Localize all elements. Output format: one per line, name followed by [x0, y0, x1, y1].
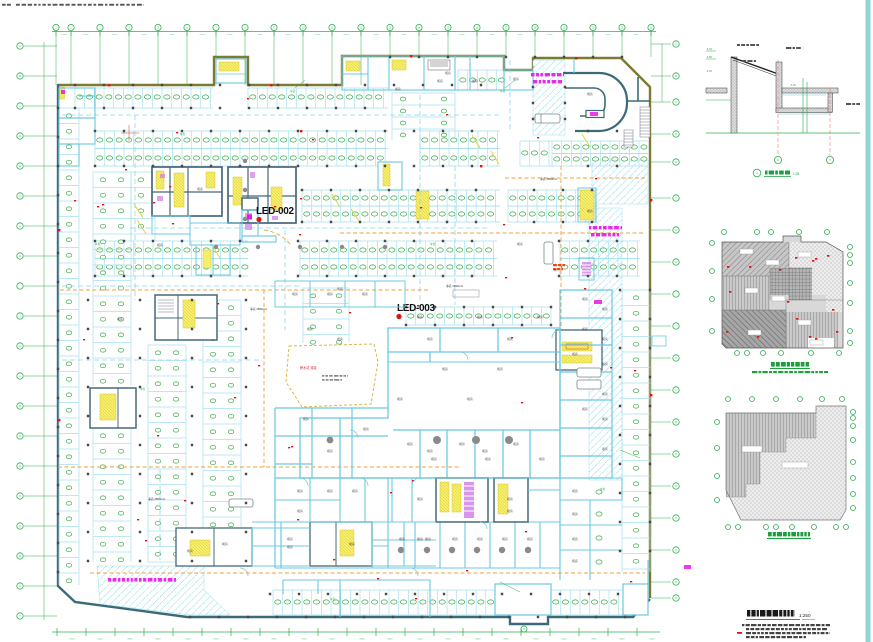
svg-text:机房: 机房	[587, 92, 593, 96]
svg-text:机房: 机房	[602, 307, 608, 311]
svg-text:P: P	[675, 516, 677, 520]
svg-text:机房: 机房	[582, 327, 588, 331]
svg-text:机房: 机房	[287, 537, 293, 541]
svg-text:机房: 机房	[399, 537, 405, 541]
svg-text:车位: 车位	[95, 242, 101, 246]
svg-text:机房: 机房	[327, 449, 333, 453]
svg-text:8100: 8100	[402, 34, 408, 36]
svg-text:8100: 8100	[490, 34, 496, 36]
svg-text:LED-002: LED-002	[256, 206, 294, 217]
svg-text:机房: 机房	[527, 537, 533, 541]
svg-text:M: M	[675, 420, 677, 424]
svg-text:机房: 机房	[482, 449, 488, 453]
svg-text:机房: 机房	[337, 287, 343, 291]
svg-text:车位: 车位	[180, 132, 186, 136]
svg-text:机房: 机房	[602, 337, 608, 341]
svg-text:8100: 8100	[244, 639, 250, 641]
svg-text:车位: 车位	[140, 387, 146, 391]
svg-text:机房: 机房	[297, 489, 303, 493]
svg-text:机房: 机房	[507, 337, 513, 341]
svg-text:机房: 机房	[572, 489, 578, 493]
svg-text:机房: 机房	[587, 209, 593, 213]
svg-text:8100: 8100	[272, 639, 278, 641]
svg-text:LED-003: LED-003	[397, 303, 435, 314]
svg-text:E: E	[675, 160, 677, 164]
svg-text:机房: 机房	[459, 442, 465, 446]
svg-text:G: G	[19, 224, 21, 228]
svg-text:机房: 机房	[445, 71, 451, 75]
svg-text:8100: 8100	[592, 639, 598, 641]
svg-text:净高 2850mm: 净高 2850mm	[148, 497, 166, 501]
svg-text:净高 2850mm: 净高 2850mm	[250, 307, 268, 311]
svg-text:机房: 机房	[431, 457, 437, 461]
svg-text:8100: 8100	[650, 639, 656, 641]
svg-text:机房: 机房	[572, 537, 578, 541]
svg-text:H: H	[19, 254, 21, 258]
svg-text:机房: 机房	[602, 447, 608, 451]
svg-text:机房: 机房	[363, 427, 369, 431]
svg-text:机房: 机房	[222, 542, 228, 546]
svg-text:机房: 机房	[572, 512, 578, 516]
svg-text:8100: 8100	[186, 639, 192, 641]
svg-text:8100: 8100	[374, 34, 380, 36]
svg-text:8100: 8100	[84, 34, 90, 36]
svg-text:车位: 车位	[430, 242, 436, 246]
svg-text:机房: 机房	[602, 362, 608, 366]
svg-text:机房: 机房	[572, 559, 578, 563]
svg-text:8100: 8100	[62, 34, 68, 36]
svg-text:机房: 机房	[507, 509, 513, 513]
svg-text:1: 1	[756, 171, 758, 175]
svg-text:机房: 机房	[187, 549, 193, 553]
svg-text:机房: 机房	[362, 292, 368, 296]
svg-text:8100: 8100	[302, 639, 308, 641]
svg-text:1:25: 1:25	[793, 172, 799, 176]
svg-text:机房: 机房	[572, 352, 578, 356]
svg-text:机房: 机房	[292, 292, 298, 296]
svg-text:机房: 机房	[417, 497, 423, 501]
svg-text:机房: 机房	[427, 337, 433, 341]
svg-text:8100: 8100	[112, 34, 118, 36]
svg-text:N: N	[675, 452, 677, 456]
svg-text:机房: 机房	[395, 87, 401, 91]
svg-text:机房: 机房	[582, 407, 588, 411]
svg-text:机房: 机房	[517, 242, 523, 246]
svg-text:机房: 机房	[477, 537, 483, 541]
svg-text:机房: 机房	[507, 497, 513, 501]
svg-text:机房: 机房	[497, 367, 503, 371]
svg-text:机房: 机房	[303, 417, 309, 421]
svg-text:R: R	[675, 580, 677, 584]
svg-text:车道: 车道	[330, 597, 336, 601]
svg-text:O: O	[675, 484, 677, 488]
svg-text:机房: 机房	[287, 545, 293, 549]
svg-text:机房: 机房	[437, 79, 443, 83]
svg-text:8100: 8100	[388, 639, 394, 641]
svg-text:机房: 机房	[307, 327, 313, 331]
svg-text:E: E	[19, 164, 21, 168]
svg-text:D: D	[19, 134, 21, 138]
svg-text:-5.85: -5.85	[706, 55, 712, 59]
svg-text:机房: 机房	[427, 449, 433, 453]
svg-text:C: C	[19, 104, 21, 108]
svg-text:8100: 8100	[128, 639, 134, 641]
svg-text:8100: 8100	[330, 639, 336, 641]
svg-text:B: B	[19, 74, 21, 78]
svg-text:8100: 8100	[156, 639, 162, 641]
svg-text:车道: 车道	[290, 89, 296, 93]
svg-text:机房: 机房	[485, 457, 491, 461]
svg-text:8100: 8100	[460, 34, 466, 36]
svg-text:M: M	[19, 404, 21, 408]
svg-text:8100: 8100	[534, 639, 540, 641]
svg-text:D: D	[675, 132, 677, 136]
svg-text:H: H	[675, 260, 677, 264]
svg-text:R: R	[19, 554, 21, 558]
svg-text:机房: 机房	[397, 397, 403, 401]
svg-text:8100: 8100	[214, 639, 220, 641]
svg-text:8100: 8100	[418, 639, 424, 641]
svg-text:机房: 机房	[157, 243, 163, 247]
svg-text:8100: 8100	[316, 34, 322, 36]
svg-text:机房: 机房	[539, 457, 545, 461]
svg-text:机房: 机房	[477, 315, 483, 319]
svg-text:8100: 8100	[258, 34, 264, 36]
svg-text:A: A	[675, 42, 677, 46]
svg-text:机房: 机房	[513, 77, 519, 81]
svg-text:机房: 机房	[327, 292, 333, 296]
svg-text:G: G	[675, 228, 677, 232]
svg-text:机房: 机房	[407, 442, 413, 446]
svg-text:机房: 机房	[602, 417, 608, 421]
svg-text:8100: 8100	[286, 34, 292, 36]
svg-text:Q: Q	[19, 524, 21, 528]
svg-text:S: S	[19, 584, 21, 588]
svg-text:8100: 8100	[620, 639, 626, 641]
svg-text:8100: 8100	[606, 34, 612, 36]
svg-text:机房: 机房	[425, 537, 431, 541]
svg-text:8100: 8100	[576, 34, 582, 36]
svg-text:净高 2850mm: 净高 2850mm	[446, 284, 464, 288]
svg-text:-5.95: -5.95	[790, 83, 796, 87]
svg-text:S: S	[675, 596, 677, 600]
svg-text:8100: 8100	[432, 34, 438, 36]
svg-text:8100: 8100	[504, 639, 510, 641]
svg-text:机房: 机房	[442, 367, 448, 371]
svg-text:1:250: 1:250	[799, 613, 811, 618]
svg-text:车位: 车位	[600, 487, 606, 491]
svg-text:机房: 机房	[582, 297, 588, 301]
svg-text:机房: 机房	[602, 392, 608, 396]
svg-text:机房: 机房	[537, 315, 543, 319]
svg-text:机房: 机房	[117, 317, 123, 321]
svg-text:车道: 车道	[500, 89, 506, 93]
svg-text:-6.45: -6.45	[706, 69, 712, 73]
svg-text:C: C	[675, 100, 677, 104]
svg-text:机房: 机房	[327, 489, 333, 493]
svg-text:机房: 机房	[197, 187, 203, 191]
svg-text:机房: 机房	[467, 397, 473, 401]
svg-text:积水坑 待定: 积水坑 待定	[300, 365, 318, 370]
svg-text:机房: 机房	[337, 337, 343, 341]
svg-text:净高 2850mm: 净高 2850mm	[540, 177, 558, 181]
svg-text:K: K	[19, 344, 21, 348]
svg-text:8100: 8100	[344, 34, 350, 36]
svg-text:机房: 机房	[452, 537, 458, 541]
svg-text:机房: 机房	[513, 442, 519, 446]
svg-text:8100: 8100	[476, 639, 482, 641]
svg-text:8100: 8100	[518, 34, 524, 36]
svg-text:P: P	[19, 494, 21, 498]
svg-text:A: A	[19, 44, 21, 48]
svg-text:机房: 机房	[349, 542, 355, 546]
svg-text:8100: 8100	[200, 34, 206, 36]
svg-text:机房: 机房	[502, 537, 508, 541]
svg-text:机房: 机房	[352, 489, 358, 493]
svg-text:8100: 8100	[170, 34, 176, 36]
svg-text:Q: Q	[675, 548, 677, 552]
svg-text:B: B	[675, 74, 677, 78]
svg-text:8100: 8100	[70, 639, 76, 641]
svg-text:机房: 机房	[417, 537, 423, 541]
svg-text:8100: 8100	[98, 639, 104, 641]
svg-text:8100: 8100	[562, 639, 568, 641]
svg-text:8100: 8100	[446, 639, 452, 641]
svg-text:8100: 8100	[548, 34, 554, 36]
svg-text:8100: 8100	[634, 34, 640, 36]
svg-text:K: K	[675, 356, 677, 360]
svg-text:8100: 8100	[228, 34, 234, 36]
svg-text:8100: 8100	[360, 639, 366, 641]
svg-text:O: O	[19, 464, 21, 468]
svg-text:-5.45: -5.45	[706, 47, 712, 51]
svg-text:机房: 机房	[417, 315, 423, 319]
svg-text:机房: 机房	[472, 79, 478, 83]
svg-text:8100: 8100	[142, 34, 148, 36]
svg-text:机房: 机房	[297, 509, 303, 513]
svg-text:N: N	[19, 434, 21, 438]
